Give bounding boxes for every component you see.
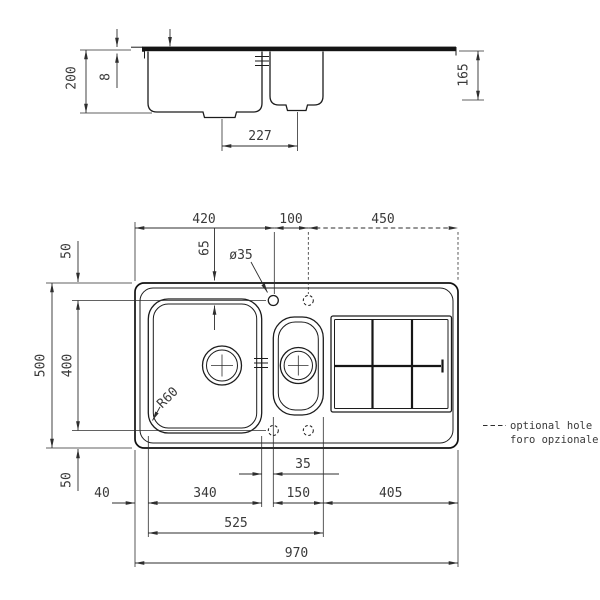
main-bowl-drain [203,346,242,385]
tap-hole [268,296,278,306]
technical-drawing-page: 200 8 165 227 [0,0,600,600]
dim-rim-thickness: 8 [99,29,171,88]
tap-hole-diameter-callout: ø35 [229,248,267,293]
side-view: 200 8 165 227 [65,29,485,151]
dim-405-label: 405 [379,486,402,501]
dim-500-label: 500 [34,354,49,377]
dim-bowl-depth-label: 200 [65,66,80,89]
main-bowl-profile [148,52,262,118]
dim-hole-inset: 65 [198,228,215,330]
legend-line1: optional hole [510,420,592,432]
sink-dimension-drawing: 200 8 165 227 [0,0,600,600]
dim-150-label: 150 [287,486,310,501]
corner-radius-label: R60 [154,384,181,411]
dim-50-top-label: 50 [60,243,75,259]
dim-top-chain: 420 100 450 [135,212,458,294]
legend: optional hole foro opzionale [483,420,599,446]
dim-420-label: 420 [192,212,215,227]
deck-bar [142,47,456,52]
dim-drain-distance-label: 227 [248,129,271,144]
dim-65-label: 65 [198,240,213,256]
dim-right-depth: 165 [457,51,485,100]
half-bowl-profile [270,52,323,111]
drainboard [331,316,452,412]
main-bowl [148,299,261,433]
dim-35-label: 35 [295,457,311,472]
dim-100-label: 100 [279,212,302,227]
dim-340-label: 340 [193,486,216,501]
dim-50-bottom-label: 50 [60,472,75,488]
dim-450-label: 450 [371,212,394,227]
dim-40-label: 40 [94,486,110,501]
corner-radius-callout: R60 [153,384,182,420]
dim-970-label: 970 [285,546,308,561]
optional-hole-bottom-right [303,426,313,436]
overflow-mark-plan [254,359,268,368]
dim-right-depth-label: 165 [457,63,472,86]
plan-view: 420 100 450 65 ø35 500 400 50 [34,212,459,567]
deck-left-hook [142,51,145,58]
dim-left-chain: 500 400 50 50 [34,241,267,491]
half-bowl-drain [280,348,316,384]
hole-diameter-label: ø35 [229,248,252,263]
dim-bottom-chain: 35 40 340 150 405 525 970 [94,417,458,567]
dim-rim-thickness-label: 8 [99,73,114,81]
optional-hole-top [303,296,313,306]
dim-525-label: 525 [224,516,247,531]
dim-400-label: 400 [61,354,76,377]
legend-line2: foro opzionale [510,434,599,446]
